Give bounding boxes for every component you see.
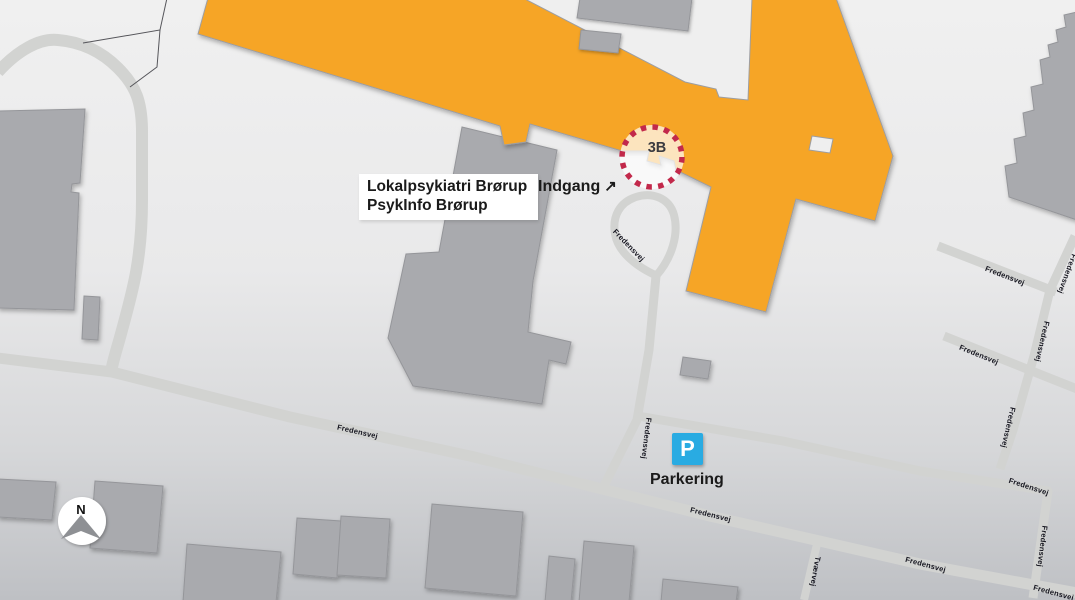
facility-label-box: Lokalpsykiatri Brørup PsykInfo Brørup [359,174,538,220]
compass: N [58,497,106,545]
parking-label: Parkering [650,471,724,489]
facility-name-line1: Lokalpsykiatri Brørup [367,177,538,196]
building-house [579,541,634,600]
entrance-arrow-icon: ↗ [604,178,617,195]
entrance-label: Indgang↗ [538,177,617,196]
building-house [293,518,341,578]
building-house [183,544,281,600]
compass-north-label: N [76,502,85,517]
facility-map: 3B N FredensvejFredensvejFredensvejFrede… [0,0,1075,600]
building-left-large [0,109,85,310]
entrance-badge-3b: 3B [620,125,684,189]
building-near-loop [680,357,711,379]
courtyard-building-small [579,30,621,53]
building-house [0,479,56,520]
badge-3b-label: 3B [648,140,667,156]
building-house [337,516,390,578]
building-house [425,504,523,596]
building-house [545,556,575,600]
parking-icon: P [672,433,703,465]
map-graphics: 3B N FredensvejFredensvejFredensvejFrede… [0,0,1075,600]
entrance-text: Indgang [538,178,600,195]
building-left-small [82,296,100,340]
facility-name-line2: PsykInfo Brørup [367,196,538,215]
arm-notch-patch [809,136,833,153]
badge-fill-circle [620,125,684,189]
